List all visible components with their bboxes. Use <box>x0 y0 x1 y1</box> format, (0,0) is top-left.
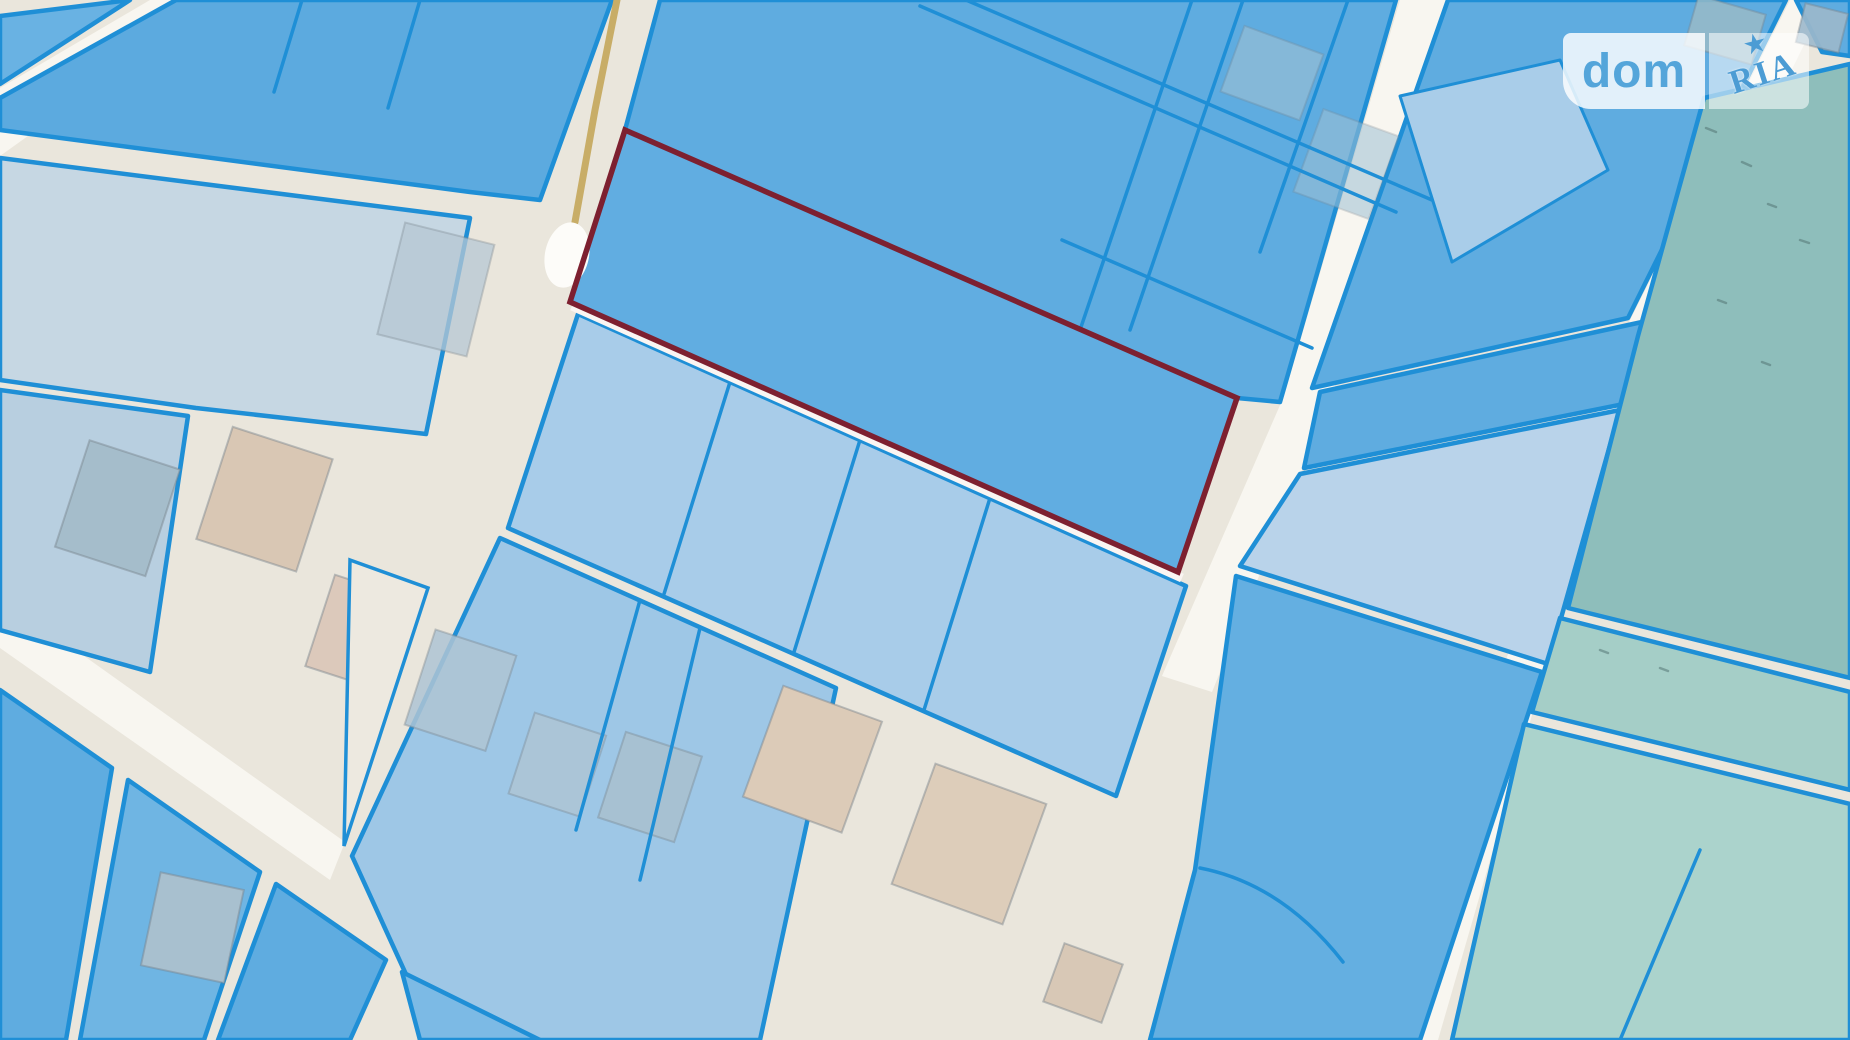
dom-ria-watermark: dom ★ RIA <box>1563 33 1809 109</box>
dom-logo-text: dom <box>1582 44 1686 99</box>
dom-logo-box: dom <box>1563 33 1705 109</box>
map-image[interactable]: dom ★ RIA <box>0 0 1850 1040</box>
building <box>141 872 244 983</box>
ria-logo-text: RIA <box>1725 45 1802 102</box>
cadastral-map-canvas <box>0 0 1850 1040</box>
ria-logo-box: ★ RIA <box>1709 33 1809 109</box>
